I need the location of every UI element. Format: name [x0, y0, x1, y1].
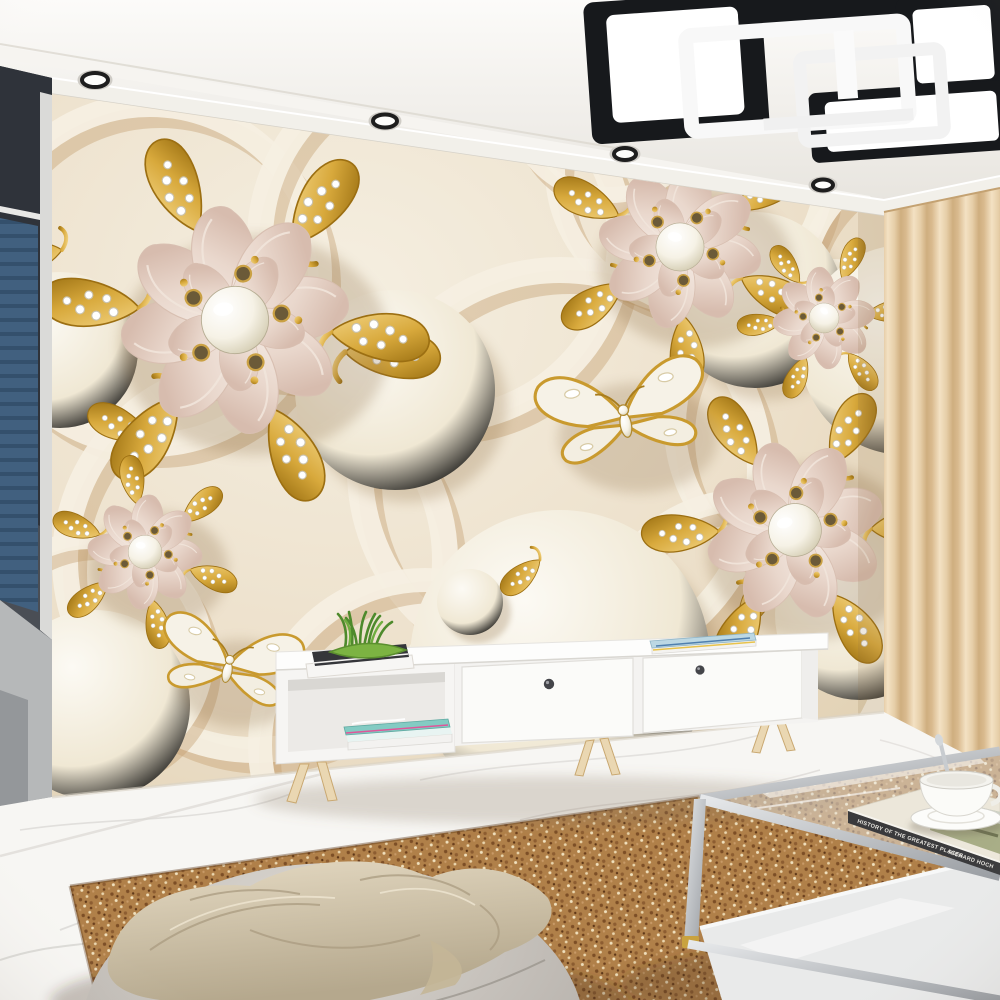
scene-canvas: HISTORY OF THE GREATEST PLACES RICHARD H… — [0, 0, 1000, 1000]
living-room-photo: HISTORY OF THE GREATEST PLACES RICHARD H… — [0, 0, 1000, 1000]
vignette-overlay — [0, 0, 1000, 1000]
